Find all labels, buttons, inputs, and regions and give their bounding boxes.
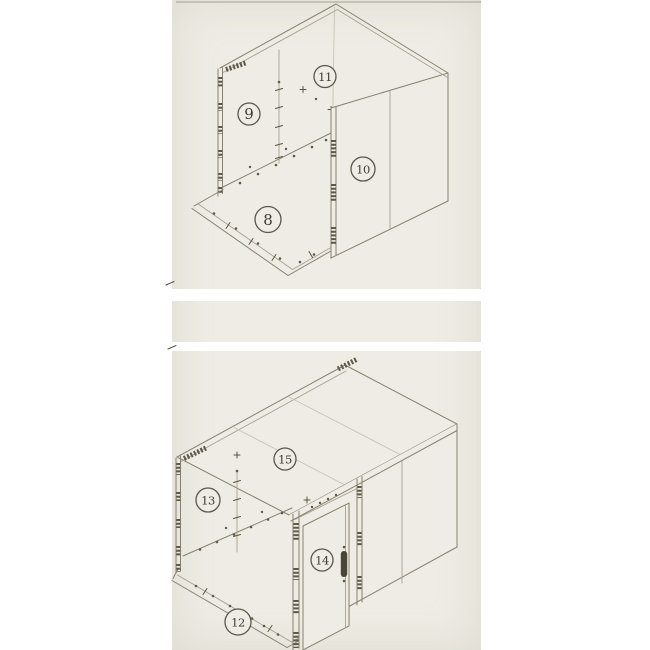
- door-handle: [341, 551, 347, 577]
- top-floor-panel-lines: [192, 190, 331, 276]
- bolt-dots: [239, 81, 328, 185]
- part-number: 10: [356, 163, 370, 177]
- top-right-wall-lines: [331, 4, 448, 258]
- part-label-9: 9: [238, 103, 260, 125]
- part-number: 11: [318, 70, 332, 84]
- top-left-wall-lines: [218, 4, 338, 196]
- part-number: 9: [244, 105, 254, 123]
- part-label-12: 12: [225, 609, 251, 635]
- part-label-11: 11: [314, 66, 336, 88]
- part-number: 12: [231, 616, 245, 630]
- part-number: 14: [315, 554, 329, 568]
- part-label-13: 13: [196, 488, 220, 512]
- part-number: 15: [278, 453, 292, 467]
- part-number: 8: [263, 211, 273, 229]
- scanned-page: { "page": { "background": "#ffffff", "sc…: [0, 0, 650, 650]
- part-number: 13: [201, 494, 215, 508]
- part-label-10: 10: [351, 157, 375, 181]
- part-label-8: 8: [255, 207, 281, 233]
- assembly-diagrams: 9 11 10 8: [0, 0, 650, 650]
- part-label-15: 15: [274, 448, 296, 470]
- bottom-diagram: 15 13 14 12: [172, 360, 457, 650]
- top-diagram: 9 11 10 8: [192, 4, 448, 276]
- part-label-14: 14: [311, 549, 333, 571]
